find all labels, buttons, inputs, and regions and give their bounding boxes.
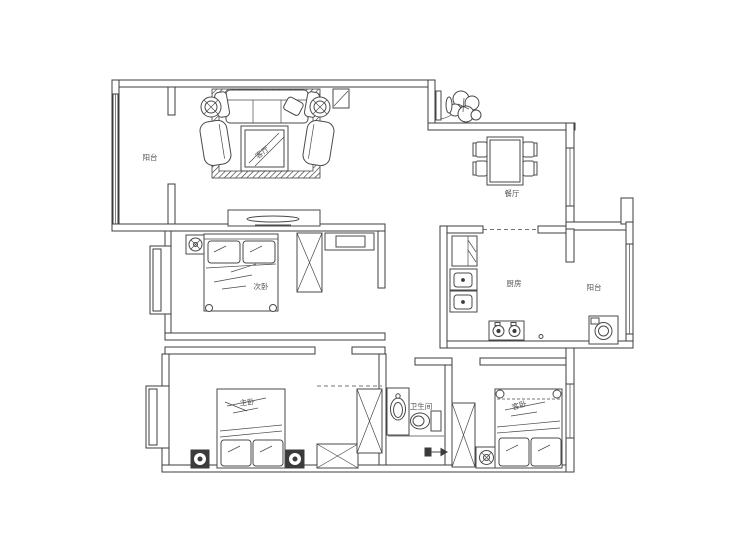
wash-basin <box>387 388 409 435</box>
gas-stove <box>489 321 543 340</box>
nightstand <box>186 235 205 254</box>
dining-window <box>566 148 574 206</box>
living-room: 客厅 <box>199 89 349 226</box>
bedroom-guest: 客卧 <box>452 389 562 468</box>
room-label-bedroom-second: 次卧 <box>254 281 269 291</box>
entry <box>436 91 481 122</box>
toilet <box>411 411 442 431</box>
balcony-window <box>113 94 118 224</box>
wall-unit <box>333 89 349 108</box>
room-label-kitchen: 厨房 <box>507 278 522 288</box>
speaker-icon-left <box>201 97 221 117</box>
dining-room: 餐厅 <box>473 137 537 198</box>
room-label-bedroom-master: 主卧 <box>239 396 255 408</box>
room-label-dining: 餐厅 <box>505 189 520 198</box>
bedroom-master: 主卧 <box>191 386 382 468</box>
room-label-balcony-right: 阳台 <box>587 282 602 292</box>
desk <box>325 233 374 250</box>
bed <box>204 234 278 312</box>
tv-cabinet <box>228 210 320 226</box>
balcony-top: 阳台 <box>143 152 158 162</box>
bedroom-second: 次卧 <box>186 233 374 312</box>
room-label-balcony-top: 阳台 <box>143 152 158 162</box>
bay-window-second-bedroom <box>150 246 171 314</box>
balcony-right-window <box>626 244 633 334</box>
wardrobe <box>297 233 322 292</box>
wardrobe <box>452 403 475 467</box>
guest-room-window <box>566 384 574 438</box>
floor-plan-page: 客厅 阳台 餐厅 <box>0 0 740 555</box>
kitchen: 厨房 <box>450 236 543 340</box>
washing-machine <box>589 316 618 344</box>
kitchen-sink <box>450 269 477 312</box>
fridge <box>452 236 477 266</box>
entry-door <box>436 91 441 120</box>
nightstand-right <box>286 450 304 468</box>
room-label-bathroom: 卫生间 <box>410 401 433 411</box>
bed <box>495 389 562 468</box>
balcony-right: 阳台 <box>587 282 619 344</box>
floor-plan: 客厅 阳台 餐厅 <box>0 0 740 555</box>
sofa <box>214 90 320 123</box>
drain-arrow-icon <box>425 448 447 456</box>
dining-table <box>487 137 523 185</box>
wardrobe-tall <box>317 386 382 453</box>
nightstand <box>476 447 497 468</box>
bathroom: 卫生间 <box>387 388 447 456</box>
nightstand-left <box>191 450 209 468</box>
bay-window-master-bedroom <box>146 386 169 448</box>
speaker-icon-right <box>310 97 330 117</box>
potted-plant-icon <box>446 91 481 122</box>
wardrobe-low <box>317 444 358 468</box>
